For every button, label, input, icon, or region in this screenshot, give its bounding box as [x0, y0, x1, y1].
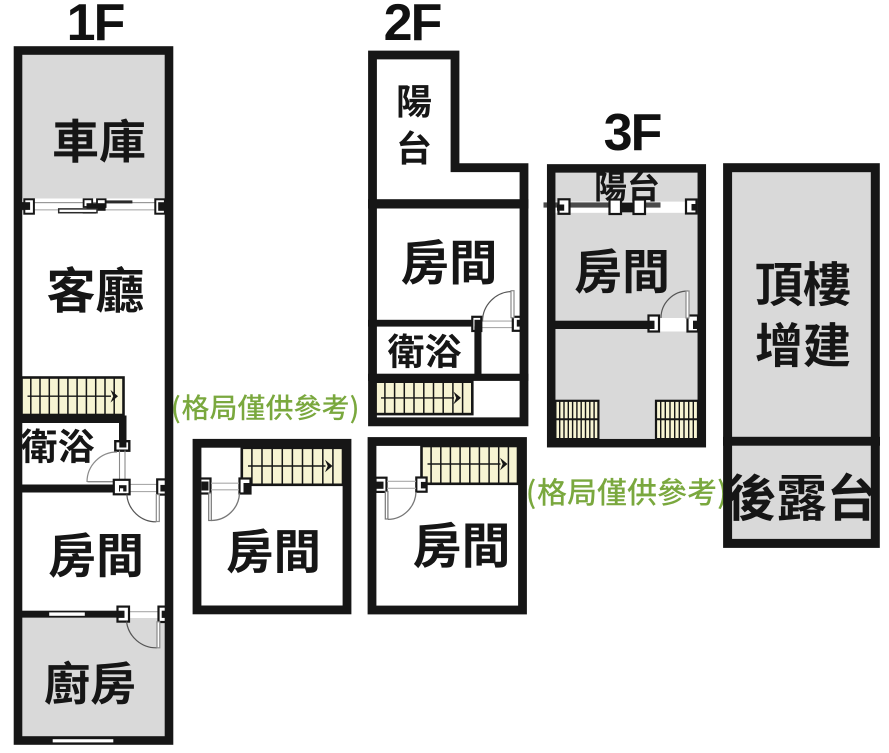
- svg-text:3F: 3F: [604, 104, 661, 162]
- svg-text:2F: 2F: [384, 0, 441, 52]
- svg-text:1F: 1F: [67, 0, 124, 52]
